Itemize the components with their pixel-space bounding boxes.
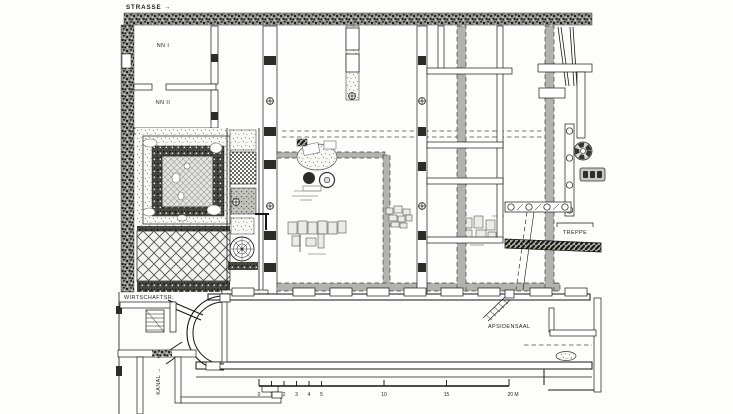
- kanal-label: KANAL →: [156, 367, 162, 395]
- room-label-nn1: NN I: [157, 43, 170, 49]
- street-label: STRASSE →: [126, 4, 171, 11]
- scale-tick-4: 4: [308, 392, 311, 398]
- later-wall-grey-west: [457, 26, 466, 291]
- wirtschaftsr-label: WIRTSCHAFTSR.: [124, 295, 174, 301]
- round-structure: [574, 142, 592, 160]
- street-wall: [124, 13, 592, 25]
- threshold-blocks: [580, 168, 605, 181]
- scale-tick-10: 10: [381, 392, 387, 398]
- scale-tick-15: 15: [444, 392, 450, 398]
- scale-tick-0: 0: [258, 392, 261, 398]
- mosaic-panel-diamond: [230, 152, 256, 184]
- west-portico-wall: [263, 26, 277, 294]
- floor-plan-canvas: STRASSE → NN I NN II: [0, 0, 733, 414]
- floor-plan-svg: STRASSE → NN I NN II: [0, 0, 733, 414]
- scale-tick-20: 20 M: [507, 392, 518, 398]
- apsidensaal-label: APSIDENSAAL: [488, 324, 530, 330]
- treppe-label: TREPPE: [563, 230, 587, 236]
- small-stair: [146, 310, 164, 332]
- room-label-nn2: NN II: [156, 100, 171, 106]
- rosette-mosaic: [230, 237, 254, 261]
- tiled-floor: [137, 226, 230, 292]
- scale-tick-5: 5: [320, 392, 323, 398]
- north-partition: [346, 26, 359, 100]
- scale-tick-2: 2: [283, 392, 286, 398]
- peristyle-garden: [136, 128, 232, 228]
- scale-tick-3: 3: [295, 392, 298, 398]
- south-colonnade: [505, 202, 571, 212]
- scale-tick-1: 1: [270, 392, 273, 398]
- paper-background: [0, 0, 733, 414]
